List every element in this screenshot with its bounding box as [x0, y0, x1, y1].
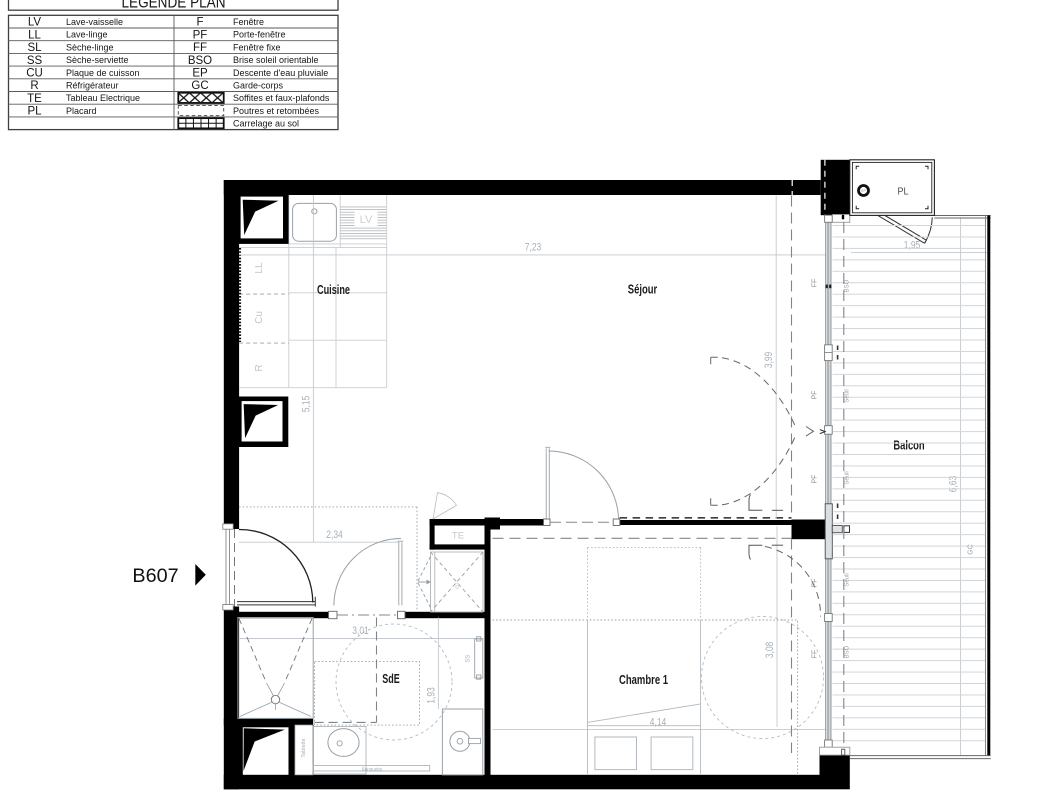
svg-text:Lave-linge: Lave-linge	[66, 30, 108, 40]
svg-text:Carrelage au sol: Carrelage au sol	[233, 119, 299, 129]
svg-text:PF: PF	[812, 391, 819, 400]
svg-text:SS: SS	[465, 655, 471, 663]
svg-text:FF: FF	[812, 279, 819, 288]
svg-text:LL: LL	[254, 262, 265, 274]
svg-text:Fenêtre fixe: Fenêtre fixe	[233, 42, 281, 52]
svg-text:GC: GC	[968, 544, 975, 555]
svg-text:Cuisine: Cuisine	[317, 282, 350, 297]
svg-text:PF: PF	[812, 475, 819, 484]
svg-text:Seuil: Seuil	[844, 573, 850, 586]
svg-text:LV: LV	[28, 17, 42, 29]
svg-text:Seuil: Seuil	[844, 389, 850, 402]
svg-text:GC: GC	[191, 80, 208, 92]
svg-text:Plaque de cuisson: Plaque de cuisson	[66, 68, 140, 78]
svg-text:SL: SL	[27, 42, 42, 54]
svg-text:R: R	[30, 80, 38, 92]
svg-text:Placard: Placard	[66, 106, 97, 116]
svg-text:LEGENDE PLAN: LEGENDE PLAN	[122, 0, 226, 11]
svg-text:Lave-vaisselle: Lave-vaisselle	[66, 17, 123, 27]
svg-text:Tableau Electrique: Tableau Electrique	[66, 93, 140, 103]
svg-text:PF: PF	[812, 579, 819, 588]
svg-text:Porte-fenêtre: Porte-fenêtre	[233, 30, 286, 40]
svg-text:SdE: SdE	[382, 671, 400, 686]
svg-text:BSO: BSO	[844, 279, 850, 292]
svg-text:TE: TE	[452, 531, 464, 542]
svg-text:SS: SS	[27, 55, 43, 67]
svg-text:Chambre 1: Chambre 1	[619, 672, 668, 687]
svg-text:1,93: 1,93	[425, 687, 437, 704]
svg-text:F: F	[196, 17, 203, 29]
svg-text:Descente d'eau pluviale: Descente d'eau pluviale	[233, 68, 328, 78]
svg-text:FF: FF	[812, 650, 819, 659]
svg-text:EP: EP	[192, 67, 208, 79]
svg-text:Garde-corps: Garde-corps	[233, 80, 284, 90]
svg-text:Cu: Cu	[254, 311, 265, 324]
svg-text:LL: LL	[28, 29, 41, 41]
svg-text:Seuil: Seuil	[844, 471, 850, 484]
svg-text:Soffites et faux-plafonds: Soffites et faux-plafonds	[233, 93, 330, 103]
svg-text:FF: FF	[193, 42, 207, 54]
svg-text:TE: TE	[27, 93, 42, 105]
svg-text:Banquette: Banquette	[362, 767, 383, 772]
svg-text:Sèche-serviette: Sèche-serviette	[66, 55, 129, 65]
svg-text:60: 60	[455, 583, 461, 589]
svg-text:Sèche-linge: Sèche-linge	[66, 42, 114, 52]
svg-text:Réfrigérateur: Réfrigérateur	[66, 80, 119, 90]
svg-text:BSO: BSO	[844, 645, 850, 658]
svg-text:3,99: 3,99	[763, 352, 775, 369]
svg-text:4,14: 4,14	[650, 717, 667, 729]
svg-text:PL: PL	[27, 106, 42, 118]
svg-text:7,23: 7,23	[525, 242, 542, 254]
svg-text:Poutres et retombées: Poutres et retombées	[233, 106, 320, 116]
svg-text:Séjour: Séjour	[628, 282, 658, 297]
svg-text:Tablette: Tablette	[301, 738, 307, 757]
svg-text:Brise soleil orientable: Brise soleil orientable	[233, 55, 319, 65]
svg-text:3,08: 3,08	[764, 642, 776, 659]
svg-text:R: R	[254, 364, 265, 371]
svg-text:CU: CU	[26, 67, 43, 79]
svg-text:LV: LV	[360, 214, 373, 226]
svg-text:PF: PF	[193, 29, 208, 41]
svg-text:PL: PL	[898, 186, 909, 198]
svg-text:EP: EP	[861, 189, 866, 193]
svg-text:2,34: 2,34	[326, 529, 343, 541]
svg-text:Fenêtre: Fenêtre	[233, 17, 264, 27]
svg-text:B607: B607	[132, 565, 178, 587]
svg-text:5,15: 5,15	[301, 396, 313, 413]
svg-text:BSO: BSO	[188, 55, 212, 67]
